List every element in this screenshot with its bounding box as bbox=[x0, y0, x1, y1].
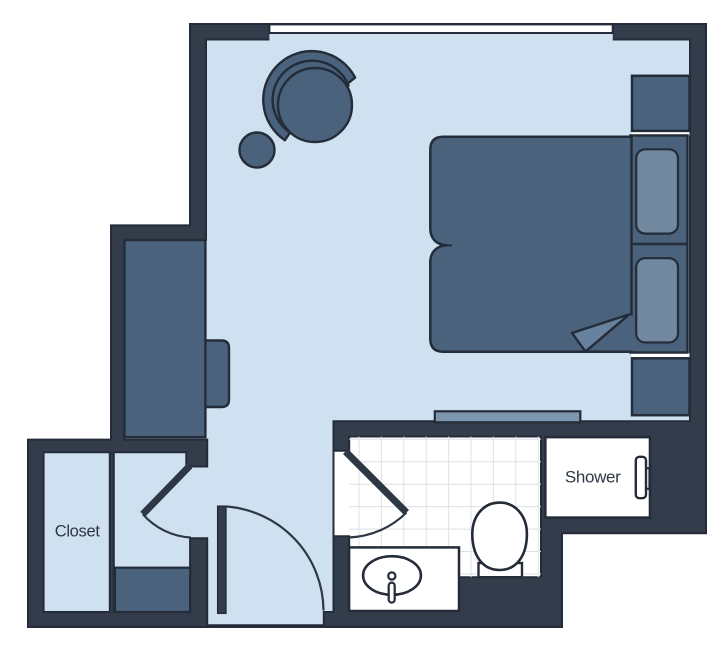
svg-text:Closet: Closet bbox=[55, 523, 101, 541]
svg-text:Shower: Shower bbox=[565, 468, 621, 487]
